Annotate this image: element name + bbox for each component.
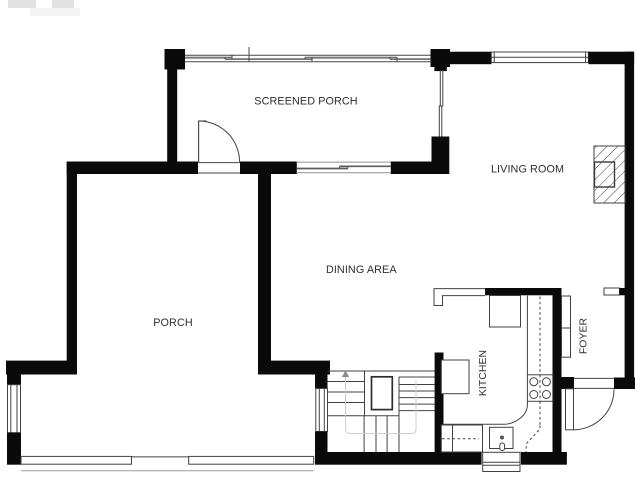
svg-text:SCREENED PORCH: SCREENED PORCH	[254, 95, 357, 107]
svg-text:DINING AREA: DINING AREA	[326, 264, 397, 276]
svg-text:PORCH: PORCH	[153, 317, 193, 329]
svg-text:FOYER: FOYER	[578, 317, 589, 354]
svg-text:KITCHEN: KITCHEN	[478, 350, 489, 396]
svg-text:LIVING ROOM: LIVING ROOM	[491, 163, 564, 175]
